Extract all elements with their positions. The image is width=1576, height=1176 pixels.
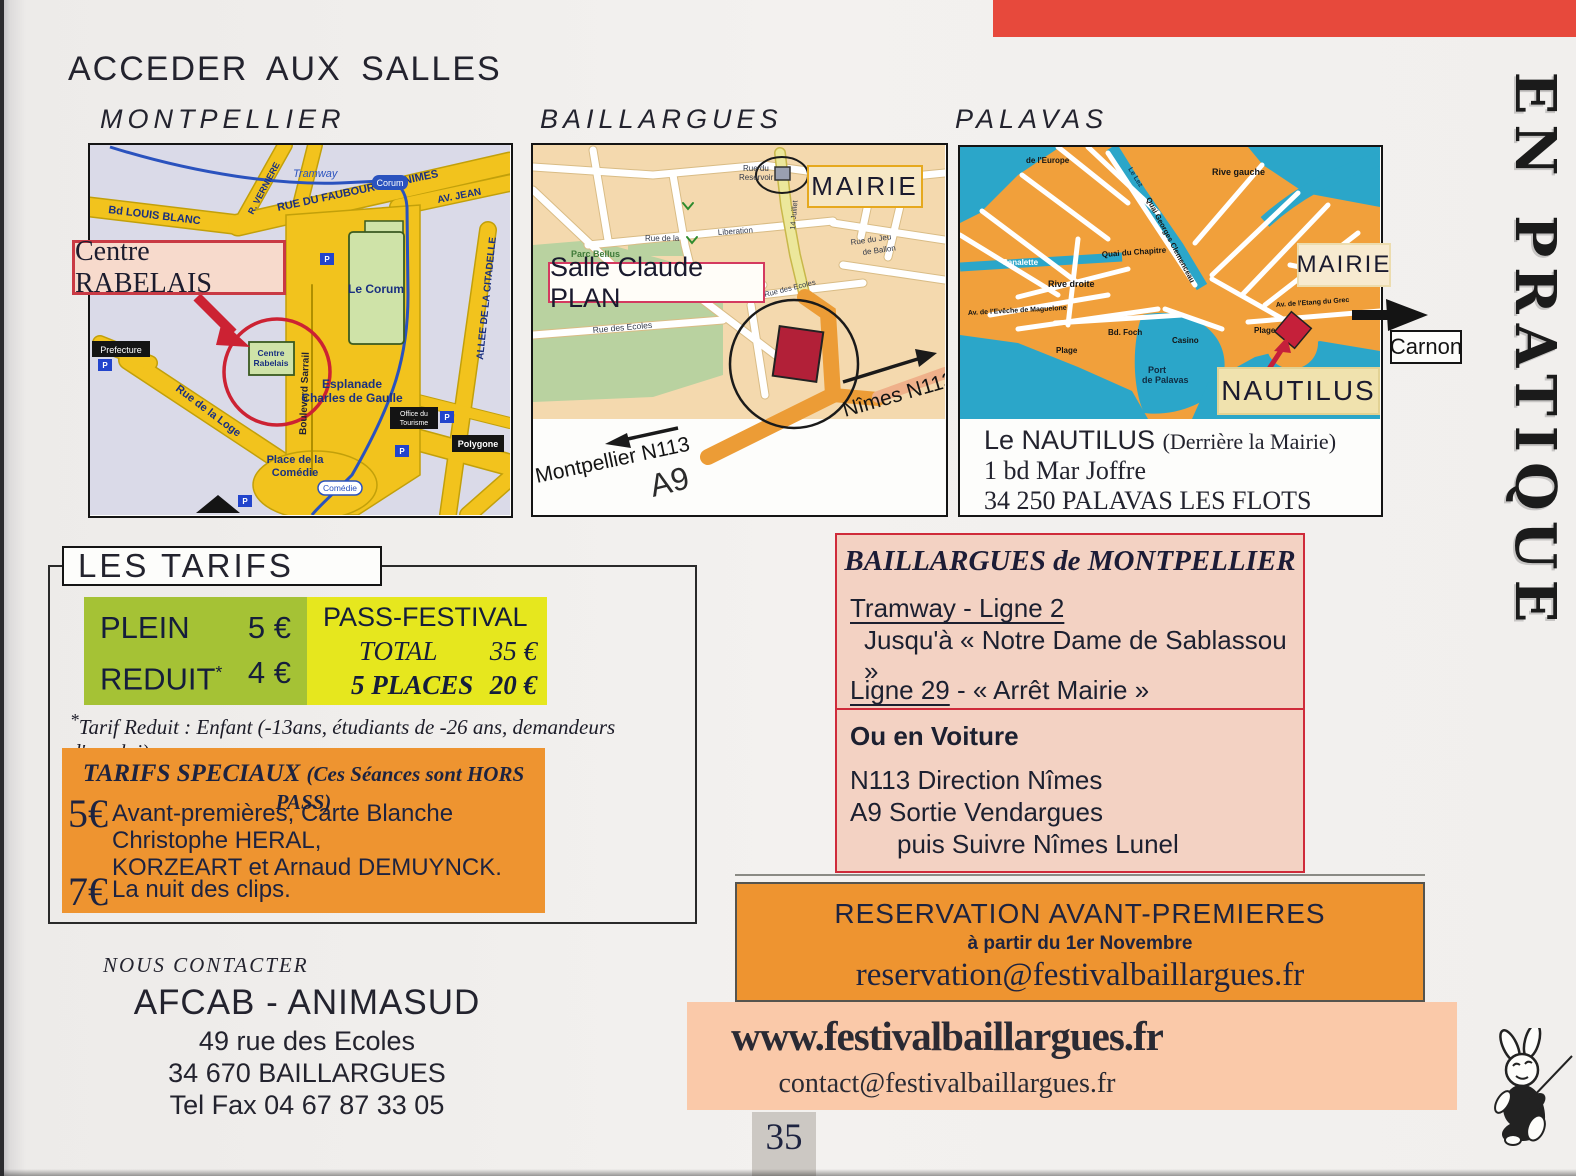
page-number: 35 <box>752 1112 816 1164</box>
parking-icon: P <box>102 361 108 370</box>
rabelais-label: Rabelais <box>254 358 289 368</box>
street-label: Plage <box>1254 326 1276 335</box>
corum-label: Le Corum <box>348 282 404 296</box>
acces-car-line2: A9 Sortie Vendargues <box>850 797 1103 828</box>
street-label: Rue de la <box>645 234 680 243</box>
tarif-price-reduit: 4 € <box>248 650 291 701</box>
callout-salle-claude-plan: Salle Claude PLAN <box>548 262 765 303</box>
tarif-label-plein: PLEIN <box>100 605 190 650</box>
reservation-title: RESERVATION AVANT-PREMIERES <box>737 898 1423 930</box>
speciaux-price-1: 5€ <box>68 790 108 837</box>
pass-festival-title: PASS-FESTIVAL <box>307 601 547 634</box>
reservation-box: RESERVATION AVANT-PREMIERES à partir du … <box>735 882 1425 1002</box>
website-box: www.festivalbaillargues.fr contact@festi… <box>687 1002 1457 1110</box>
contact-phone: Tel Fax 04 67 87 33 05 <box>132 1089 482 1121</box>
venue-note: (Derrière la Mairie) <box>1163 429 1336 454</box>
acces-car-line3: puis Suivre Nîmes Lunel <box>897 829 1179 860</box>
tarifs-standard-box: PLEIN 5 € REDUIT* 4 € <box>84 597 307 705</box>
esplanade-label: Esplanade <box>322 377 382 391</box>
acces-bus-stop: - « Arrêt Mairie » <box>950 675 1149 705</box>
speciaux-title: TARIFS SPECIAUX <box>83 760 307 787</box>
website-email: contact@festivalbaillargues.fr <box>687 1068 1207 1100</box>
contact-block: AFCAB - ANIMASUD 49 rue des Ecoles 34 67… <box>132 981 482 1121</box>
street-label: Reservoir <box>739 173 774 182</box>
speciaux-item2-text: La nuit des clips. <box>112 876 291 903</box>
rabelais-label: Centre <box>258 348 285 358</box>
venue-address-line: 1 bd Mar Joffre <box>984 456 1336 486</box>
comedie-stop-label: Comédie <box>323 483 357 493</box>
tarifs-title: LES TARIFS <box>78 547 294 585</box>
montpellier-map-canvas: Bd LOUIS BLANC R. VERNIERE RUE DU FAUBOU… <box>90 145 510 515</box>
reservation-top-rule <box>735 874 1425 876</box>
contact-title: NOUS CONTACTER <box>103 953 309 978</box>
esplanade-label: Charles de Gaulle <box>301 391 403 405</box>
speciaux-item1-line1: Avant-premières, Carte Blanche Christoph… <box>112 800 545 854</box>
street-label: Casino <box>1172 336 1199 345</box>
scan-bottom-edge <box>0 1169 1576 1176</box>
map-label-montpellier: MONTPELLIER <box>100 104 346 135</box>
acces-divider <box>837 708 1303 710</box>
street-label: Rive droite <box>1048 279 1095 289</box>
top-red-bar <box>993 0 1576 37</box>
parking-icon: P <box>324 255 330 264</box>
street-label: Bd. Foch <box>1108 328 1142 337</box>
salle-claude-plan-building <box>773 326 824 382</box>
acces-tram-line: Tramway - Ligne 2 <box>850 593 1064 624</box>
callout-carnon: Carnon <box>1390 330 1462 364</box>
palavas-map: de l'Europe Rive gauche Le Lez Canalette… <box>958 145 1383 517</box>
callout-nautilus: NAUTILUS <box>1217 367 1380 415</box>
street-label: Port <box>1148 365 1166 375</box>
map-label-baillargues: BAILLARGUES <box>540 104 783 135</box>
tarif-price-plein: 5 € <box>248 605 291 650</box>
callout-centre-rabelais: Centre RABELAIS <box>72 240 286 295</box>
pass-places-price: 20 € <box>490 668 537 702</box>
corum-stop-label: Corum <box>376 178 403 188</box>
nautilus-address: Le NAUTILUS (Derrière la Mairie) 1 bd Ma… <box>984 425 1336 516</box>
contact-address2: 34 670 BAILLARGUES <box>132 1057 482 1089</box>
callout-palavas-mairie: MAIRIE <box>1297 243 1391 287</box>
rabbit-guitar-mascot-icon <box>1480 1028 1576 1146</box>
polygone-label: Polygone <box>458 439 499 449</box>
parking-icon: P <box>242 497 248 506</box>
note-star: * <box>70 710 79 730</box>
parking-icon: P <box>399 447 405 456</box>
acces-car-title: Ou en Voiture <box>850 721 1019 752</box>
page-number-tab: 35 <box>752 1112 816 1176</box>
section-side-title: EN PRATIQUE <box>1476 62 1568 642</box>
pass-total-price: 35 € <box>490 634 537 668</box>
acces-title: BAILLARGUES de MONTPELLIER <box>837 545 1303 578</box>
street-label: Plage <box>1056 346 1078 355</box>
acces-baillargues-box: BAILLARGUES de MONTPELLIER Tramway - Lig… <box>835 533 1305 873</box>
venue-name: Le NAUTILUS <box>984 425 1155 455</box>
street-label: Rive gauche <box>1212 167 1265 177</box>
parking-icon: P <box>444 413 450 422</box>
tarif-reduit-star: * <box>215 662 222 682</box>
pass-total-label: TOTAL <box>359 634 438 668</box>
montpellier-map: Bd LOUIS BLANC R. VERNIERE RUE DU FAUBOU… <box>88 143 513 518</box>
website-url: www.festivalbaillargues.fr <box>687 1012 1207 1060</box>
callout-baillargues-mairie: MAIRIE <box>807 165 923 208</box>
office-label: Office du <box>400 411 428 418</box>
street-label: Canalette <box>1002 258 1039 267</box>
acces-bus-line: Ligne 29 <box>850 675 950 705</box>
street-label: de l'Europe <box>1026 156 1070 165</box>
tarifs-pass-box: PASS-FESTIVAL TOTAL 35 € 5 PLACES 20 € <box>307 597 547 705</box>
map-label-palavas: PALAVAS <box>955 104 1108 135</box>
comedie-label: Place de la <box>267 454 325 466</box>
contact-address1: 49 rue des Ecoles <box>132 1025 482 1057</box>
speciaux-price-2: 7€ <box>68 868 108 915</box>
prefecture-label: Prefecture <box>100 345 142 355</box>
street-label: Rue du <box>743 164 769 173</box>
scanned-program-page: ACCEDER AUX SALLES MONTPELLIER BAILLARGU… <box>0 0 1576 1176</box>
contact-org: AFCAB - ANIMASUD <box>132 981 482 1025</box>
tarifs-speciaux-box: TARIFS SPECIAUX (Ces Séances sont HORS P… <box>62 748 545 913</box>
tarifs-title-box: LES TARIFS <box>62 546 382 586</box>
tarif-label-reduit: REDUIT <box>100 661 215 696</box>
page-title: ACCEDER AUX SALLES <box>68 50 502 89</box>
reservation-subtitle: à partir du 1er Novembre <box>737 933 1423 955</box>
scan-left-edge <box>0 0 4 1176</box>
office-label: Tourisme <box>400 420 429 427</box>
venue-address-line: 34 250 PALAVAS LES FLOTS <box>984 486 1336 516</box>
street-label: de Palavas <box>1142 375 1189 385</box>
pass-places-label: 5 PLACES <box>351 668 473 702</box>
reservation-email: reservation@festivalbaillargues.fr <box>737 957 1423 994</box>
comedie-label: Comédie <box>272 467 318 479</box>
tramway-label: Tramway <box>293 168 339 180</box>
acces-car-line1: N113 Direction Nîmes <box>850 765 1102 796</box>
